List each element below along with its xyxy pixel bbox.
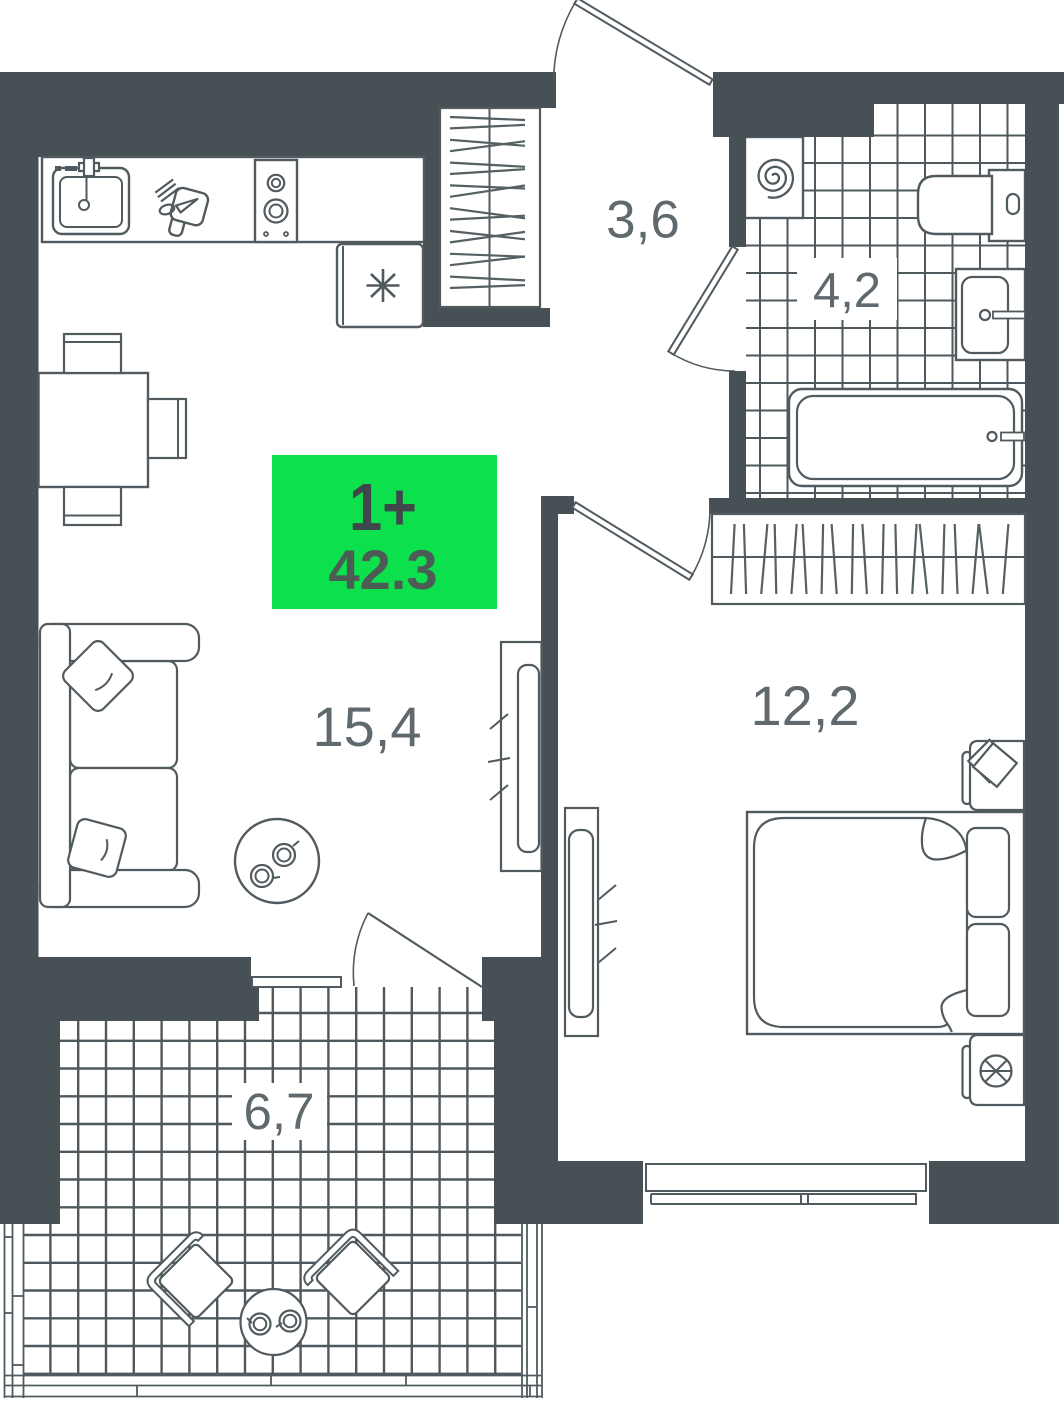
svg-text:4,2: 4,2 (813, 264, 881, 318)
svg-text:1+: 1+ (349, 470, 417, 545)
svg-text:12,2: 12,2 (751, 674, 860, 737)
svg-text:42.3: 42.3 (329, 538, 438, 601)
svg-text:6,7: 6,7 (244, 1083, 315, 1140)
svg-text:15,4: 15,4 (313, 695, 422, 758)
svg-text:3,6: 3,6 (606, 191, 680, 250)
